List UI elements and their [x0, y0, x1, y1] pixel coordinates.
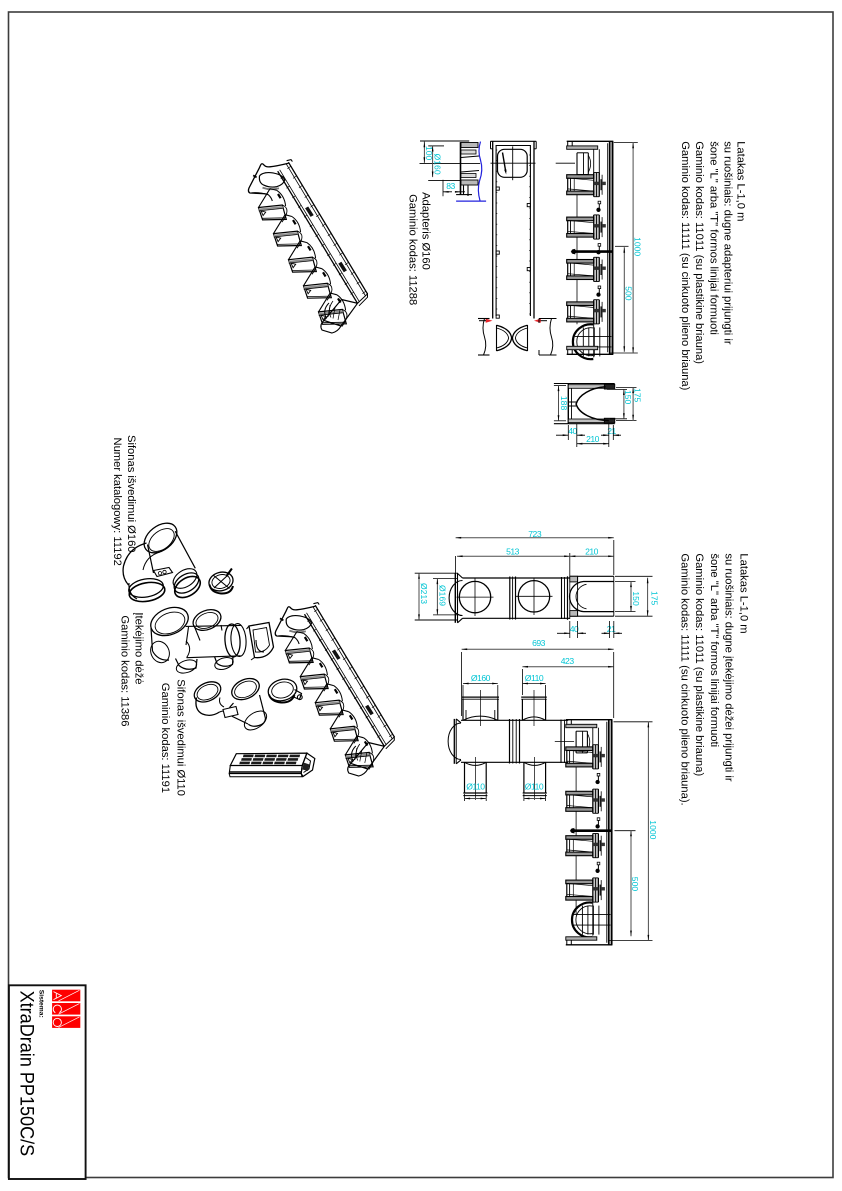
- svg-text:Ø160: Ø160: [432, 154, 442, 175]
- svg-text:Sifonas išvedimui Ø110: Sifonas išvedimui Ø110: [174, 679, 186, 796]
- svg-text:693: 693: [532, 638, 546, 648]
- svg-text:su ruošiniais: dugne įtekėjimo: su ruošiniais: dugne įtekėjimo dėžei pri…: [722, 553, 734, 781]
- svg-text:Ø160: Ø160: [471, 673, 491, 683]
- svg-text:500: 500: [630, 877, 640, 892]
- svg-text:210: 210: [585, 547, 599, 557]
- svg-text:188: 188: [559, 396, 569, 411]
- svg-text:Gaminio kodas: 11386: Gaminio kodas: 11386: [118, 615, 130, 726]
- svg-text:1000: 1000: [633, 237, 643, 256]
- svg-text:Sifonas išvedimui Ø160: Sifonas išvedimui Ø160: [125, 435, 137, 553]
- svg-text:su ruošiniais: dugne adapteriu: su ruošiniais: dugne adapteriui prijungt…: [721, 141, 733, 345]
- svg-text:150: 150: [631, 591, 641, 606]
- svg-text:Gaminio kodas: 11111 (su cinku: Gaminio kodas: 11111 (su cinkuoto plieno…: [678, 553, 690, 805]
- svg-text:500: 500: [623, 286, 633, 301]
- svg-text:210: 210: [586, 434, 600, 444]
- svg-text:XtraDrain PP150C/S: XtraDrain PP150C/S: [16, 991, 38, 1157]
- svg-text:Gaminio kodas: 11191: Gaminio kodas: 11191: [159, 683, 171, 793]
- svg-text:Ø213: Ø213: [419, 583, 429, 604]
- svg-text:Ø110: Ø110: [525, 673, 544, 683]
- svg-text:Latakas L-1,0 m: Latakas L-1,0 m: [737, 553, 749, 633]
- svg-text:Latakas L-1,0 m: Latakas L-1,0 m: [734, 141, 746, 221]
- svg-text:Ø169: Ø169: [437, 585, 447, 606]
- svg-text:Ø110: Ø110: [525, 781, 544, 791]
- svg-text:Gaminio kodas: 11111 (su cinku: Gaminio kodas: 11111 (su cinkuoto plieno…: [679, 141, 691, 390]
- svg-text:723: 723: [528, 529, 542, 539]
- svg-text:175: 175: [649, 591, 659, 606]
- svg-text:423: 423: [561, 656, 575, 666]
- svg-text:Ø110: Ø110: [466, 781, 485, 791]
- svg-text:1000: 1000: [648, 820, 658, 839]
- svg-text:Gaminio kodas: 11288: Gaminio kodas: 11288: [406, 194, 418, 305]
- svg-text:175: 175: [632, 388, 642, 403]
- svg-text:Gaminio kodas: 11011 (su plast: Gaminio kodas: 11011 (su plastikine bria…: [693, 553, 705, 776]
- svg-text:83: 83: [446, 181, 455, 191]
- svg-text:513: 513: [506, 547, 520, 557]
- svg-text:150: 150: [623, 390, 633, 405]
- svg-text:šone "L" arba "T" formos linij: šone "L" arba "T" formos linijai formuot…: [708, 553, 720, 747]
- svg-text:Įtekėjimo dėžė: Įtekėjimo dėžė: [133, 612, 145, 684]
- svg-text:21: 21: [607, 624, 616, 634]
- svg-text:šone "L" arba "T" formos linij: šone "L" arba "T" formos linijai formuot…: [707, 141, 719, 335]
- svg-text:Numer katalogowy: 11192: Numer katalogowy: 11192: [111, 438, 123, 566]
- svg-text:Adapteris Ø160: Adapteris Ø160: [420, 192, 432, 270]
- svg-text:Gaminio kodas: 11011 (su plast: Gaminio kodas: 11011 (su plastikine bria…: [693, 141, 705, 364]
- svg-text:40: 40: [568, 426, 577, 436]
